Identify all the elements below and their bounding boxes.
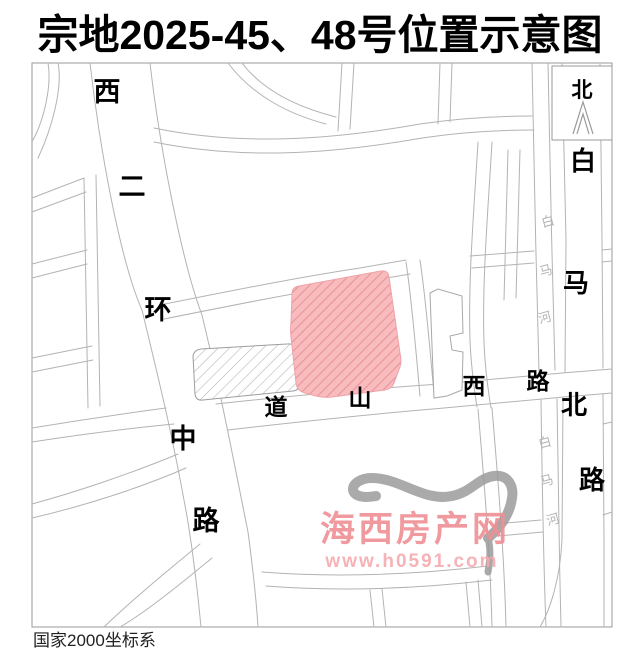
- red-target-parcel: [291, 271, 402, 397]
- watermark-site-url: www.h0591.com: [324, 551, 498, 572]
- road-label-char: 路: [527, 368, 551, 394]
- road-label-char: 二: [119, 172, 146, 202]
- location-map: 宗地2025-45、48号位置示意图 海西房产网 www.h0591.com: [0, 0, 640, 659]
- road-label-char: 道: [265, 394, 288, 420]
- road-label-char: 西: [94, 77, 121, 107]
- road-label-char: 路: [193, 505, 221, 536]
- road-label-char: 西: [463, 373, 486, 399]
- watermark-site-name: 海西房产网: [320, 510, 510, 549]
- road-label-char: 路: [579, 465, 606, 495]
- compass-box: [552, 66, 612, 140]
- gray-hatched-parcel: [193, 344, 299, 400]
- compass: 北: [552, 66, 612, 140]
- page-title: 宗地2025-45、48号位置示意图: [37, 12, 602, 58]
- road-label-char: 白: [570, 146, 596, 176]
- road-label-char: 山: [349, 385, 372, 411]
- road-label-char: 中: [170, 424, 197, 454]
- compass-north-label: 北: [572, 79, 593, 102]
- coordinate-system-label: 国家2000坐标系: [33, 631, 156, 650]
- road-label-char: 马: [563, 268, 589, 298]
- road-label-char: 北: [561, 390, 587, 420]
- road-label-char: 环: [145, 295, 172, 325]
